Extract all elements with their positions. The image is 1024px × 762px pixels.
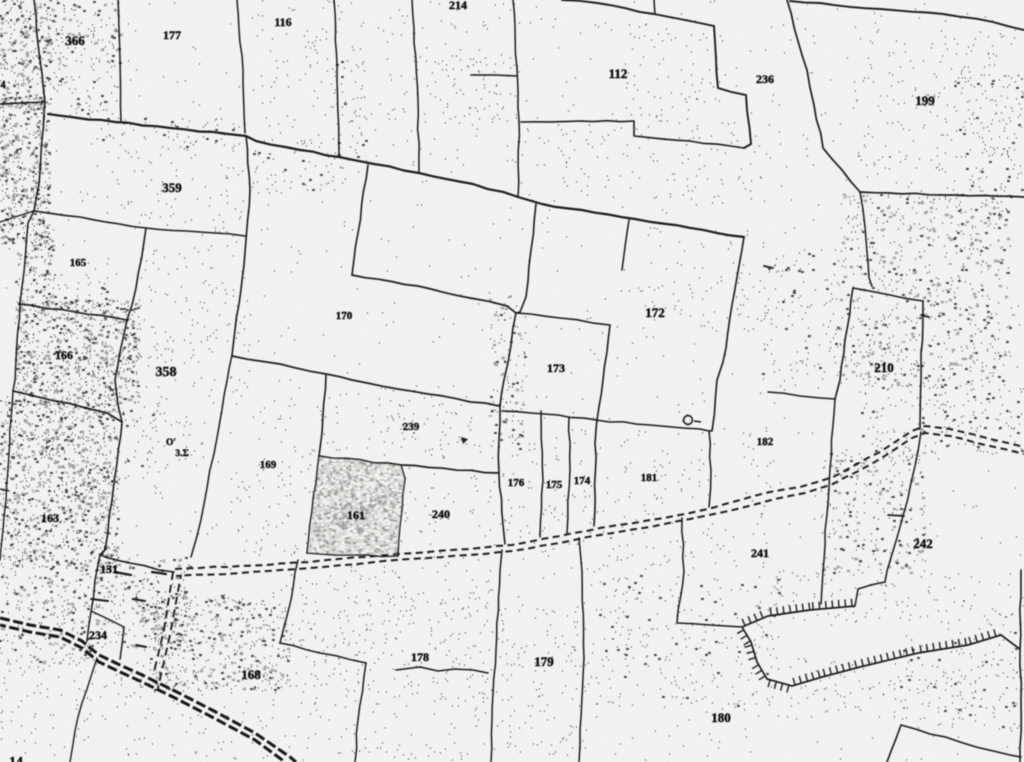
svg-text:14: 14 [9, 755, 23, 762]
svg-text:366: 366 [65, 33, 85, 48]
svg-text:199: 199 [915, 93, 935, 108]
svg-text:359: 359 [162, 180, 182, 195]
svg-text:161: 161 [347, 508, 365, 522]
svg-text:170: 170 [336, 310, 353, 322]
svg-text:3.Σ: 3.Σ [175, 449, 188, 459]
svg-text:112: 112 [609, 66, 628, 81]
svg-text:242: 242 [913, 536, 933, 551]
svg-text:173: 173 [547, 361, 565, 375]
svg-text:239: 239 [403, 421, 420, 433]
svg-text:166: 166 [55, 348, 73, 362]
svg-text:179: 179 [534, 654, 554, 669]
svg-text:172: 172 [645, 305, 665, 320]
svg-text:165: 165 [70, 257, 87, 269]
svg-text:182: 182 [757, 436, 774, 448]
svg-text:234: 234 [89, 628, 107, 642]
svg-text:178: 178 [411, 650, 429, 664]
svg-text:176: 176 [508, 477, 525, 489]
svg-text:240: 240 [432, 507, 450, 521]
svg-text:241: 241 [751, 546, 769, 560]
svg-text:358: 358 [156, 365, 177, 380]
svg-text:214: 214 [449, 0, 467, 12]
svg-text:181: 181 [641, 472, 658, 484]
svg-text:163: 163 [41, 511, 59, 525]
svg-text:175: 175 [546, 479, 563, 491]
svg-text:174: 174 [574, 475, 591, 487]
svg-text:210: 210 [874, 360, 894, 375]
svg-text:236: 236 [756, 72, 774, 86]
svg-text:180: 180 [711, 710, 731, 725]
svg-text:4: 4 [1, 80, 6, 91]
svg-text:116: 116 [274, 15, 291, 29]
svg-text:O′: O′ [166, 438, 176, 448]
svg-text:169: 169 [260, 459, 277, 471]
svg-text:131: 131 [100, 562, 118, 576]
svg-text:168: 168 [241, 667, 261, 682]
svg-text:177: 177 [163, 28, 181, 42]
